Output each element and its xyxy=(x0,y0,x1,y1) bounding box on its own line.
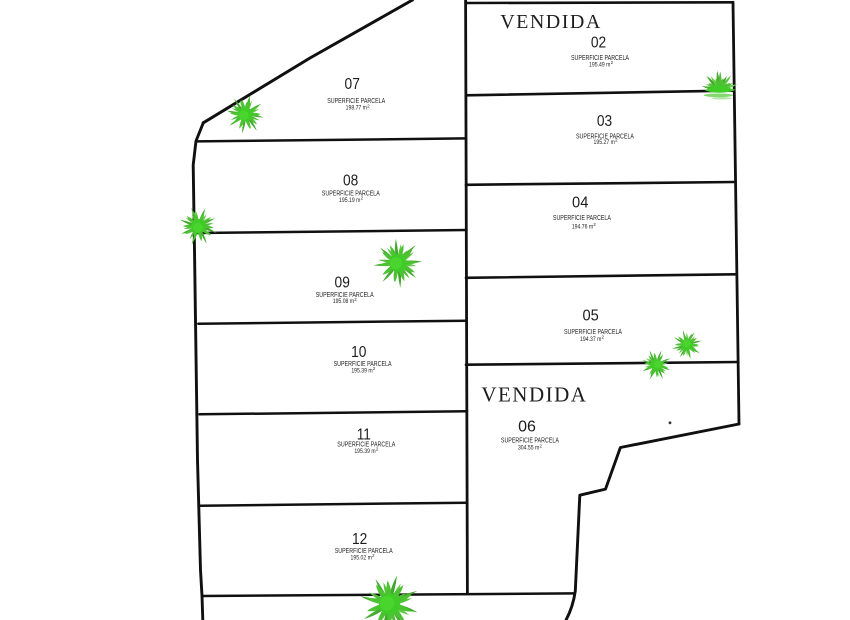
svg-text:195.08 m: 195.08 m xyxy=(333,298,355,305)
svg-text:195.39 m: 195.39 m xyxy=(354,448,376,455)
svg-text:03: 03 xyxy=(597,113,612,130)
svg-text:198.77 m: 198.77 m xyxy=(346,105,368,112)
svg-text:195.19 m: 195.19 m xyxy=(339,197,361,204)
svg-text:194.37 m: 194.37 m xyxy=(580,336,602,343)
svg-text:12: 12 xyxy=(352,531,367,548)
svg-text:08: 08 xyxy=(343,173,358,190)
svg-text:02: 02 xyxy=(591,35,606,52)
svg-text:05: 05 xyxy=(582,308,598,325)
svg-text:10: 10 xyxy=(351,344,366,361)
svg-text:194.76 m: 194.76 m xyxy=(572,224,594,231)
svg-text:195.49 m: 195.49 m xyxy=(589,61,611,68)
svg-text:SUPERFICIE PARCELA: SUPERFICIE PARCELA xyxy=(564,329,622,336)
svg-text:06: 06 xyxy=(518,418,536,435)
svg-text:195.27 m: 195.27 m xyxy=(594,139,616,146)
svg-text:07: 07 xyxy=(345,76,360,93)
svg-text:195.02 m: 195.02 m xyxy=(351,555,373,562)
svg-text:VENDIDA: VENDIDA xyxy=(500,11,602,33)
svg-text:195.39 m: 195.39 m xyxy=(351,367,373,374)
svg-text:304.55 m: 304.55 m xyxy=(518,445,540,452)
svg-text:09: 09 xyxy=(335,275,350,292)
svg-text:SUPERFICIE PARCELA: SUPERFICIE PARCELA xyxy=(501,437,559,444)
svg-text:SUPERFICIE PARCELA: SUPERFICIE PARCELA xyxy=(553,215,611,222)
svg-text:04: 04 xyxy=(572,194,588,211)
svg-text:VENDIDA: VENDIDA xyxy=(481,383,587,407)
